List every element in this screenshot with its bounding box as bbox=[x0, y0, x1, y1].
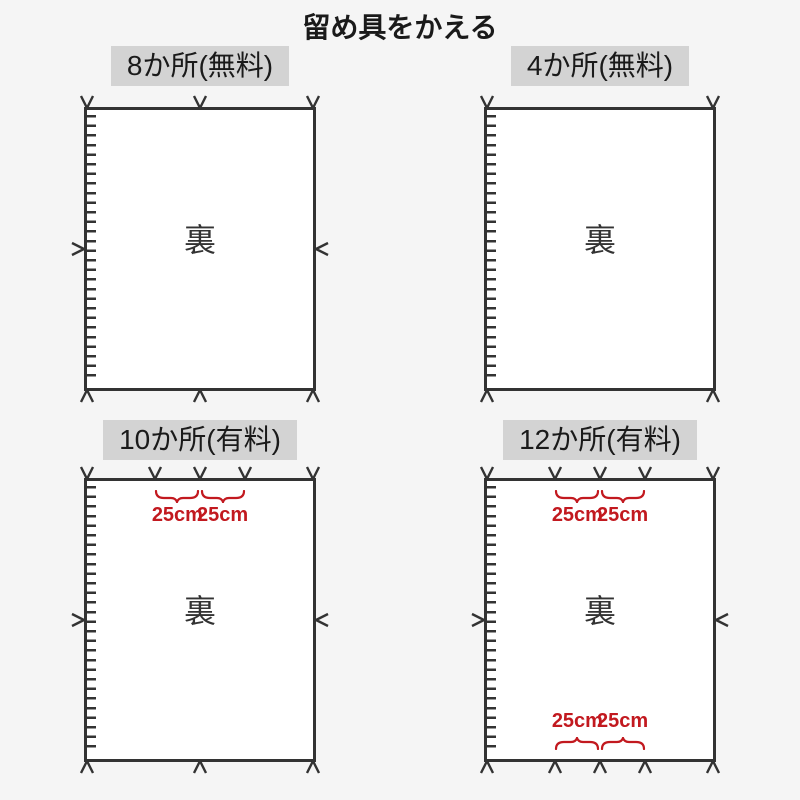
fastener-mark-icon bbox=[79, 760, 95, 774]
distance-brace-icon bbox=[154, 490, 200, 503]
fastener-mark-icon bbox=[479, 95, 495, 109]
panel-10-badge: 10か所(有料) bbox=[103, 420, 297, 460]
fastener-mark-icon bbox=[79, 466, 95, 480]
fastener-mark-icon bbox=[305, 466, 321, 480]
fastener-mark-icon bbox=[547, 760, 563, 774]
cover-back-sheet: 裏 bbox=[84, 107, 316, 391]
fastener-mark-icon bbox=[192, 389, 208, 403]
fastener-mark-icon bbox=[192, 466, 208, 480]
fastener-mark-icon bbox=[305, 760, 321, 774]
panel-12-places: 12か所(有料) 裏 25cm 25cm 25cm 25cm bbox=[400, 420, 800, 762]
panel-4-badge: 4か所(無料) bbox=[511, 46, 689, 86]
distance-brace-icon bbox=[600, 490, 646, 503]
fastener-mark-icon bbox=[479, 760, 495, 774]
fastener-mark-icon bbox=[192, 760, 208, 774]
fastener-mark-icon bbox=[315, 612, 329, 628]
panel-8-badge: 8か所(無料) bbox=[111, 46, 289, 86]
distance-brace-icon bbox=[554, 490, 600, 503]
back-side-label: 裏 bbox=[87, 586, 313, 632]
fastener-mark-icon bbox=[237, 466, 253, 480]
fastener-mark-icon bbox=[79, 95, 95, 109]
fastener-mark-icon bbox=[705, 95, 721, 109]
fastener-mark-icon bbox=[547, 466, 563, 480]
fastener-mark-icon bbox=[637, 760, 653, 774]
fastener-mark-icon bbox=[79, 389, 95, 403]
fastener-mark-icon bbox=[192, 95, 208, 109]
distance-brace-icon bbox=[554, 737, 600, 750]
fastener-mark-icon bbox=[147, 466, 163, 480]
fastener-mark-icon bbox=[315, 241, 329, 257]
fastener-mark-icon bbox=[705, 389, 721, 403]
fastener-mark-icon bbox=[637, 466, 653, 480]
fastener-mark-icon bbox=[305, 389, 321, 403]
cover-back-sheet: 裏 25cm 25cm bbox=[84, 478, 316, 762]
fastener-mark-icon bbox=[705, 760, 721, 774]
fastener-mark-icon bbox=[705, 466, 721, 480]
cover-back-sheet: 裏 25cm 25cm 25cm 25cm bbox=[484, 478, 716, 762]
panel-4-places: 4か所(無料) 裏 bbox=[400, 46, 800, 391]
distance-label: 25cm bbox=[552, 504, 603, 527]
back-side-label: 裏 bbox=[487, 215, 713, 261]
distance-label: 25cm bbox=[597, 710, 648, 733]
fastener-mark-icon bbox=[471, 612, 485, 628]
distance-label: 25cm bbox=[597, 504, 648, 527]
fastener-mark-icon bbox=[71, 241, 85, 257]
distance-label: 25cm bbox=[197, 504, 248, 527]
panel-8-places: 8か所(無料) 裏 bbox=[0, 46, 400, 391]
fastener-mark-icon bbox=[71, 612, 85, 628]
distance-brace-icon bbox=[600, 737, 646, 750]
distance-label: 25cm bbox=[152, 504, 203, 527]
distance-label: 25cm bbox=[552, 710, 603, 733]
page-title: 留め具をかえる bbox=[0, 6, 800, 46]
fastener-mark-icon bbox=[479, 389, 495, 403]
back-side-label: 裏 bbox=[487, 586, 713, 632]
fastener-mark-icon bbox=[592, 466, 608, 480]
fastener-mark-icon bbox=[479, 466, 495, 480]
fastener-mark-icon bbox=[715, 612, 729, 628]
back-side-label: 裏 bbox=[87, 215, 313, 261]
fastener-mark-icon bbox=[592, 760, 608, 774]
cover-back-sheet: 裏 bbox=[484, 107, 716, 391]
panel-12-badge: 12か所(有料) bbox=[503, 420, 697, 460]
panel-10-places: 10か所(有料) 裏 25cm 25cm bbox=[0, 420, 400, 762]
distance-brace-icon bbox=[200, 490, 246, 503]
fastener-mark-icon bbox=[305, 95, 321, 109]
